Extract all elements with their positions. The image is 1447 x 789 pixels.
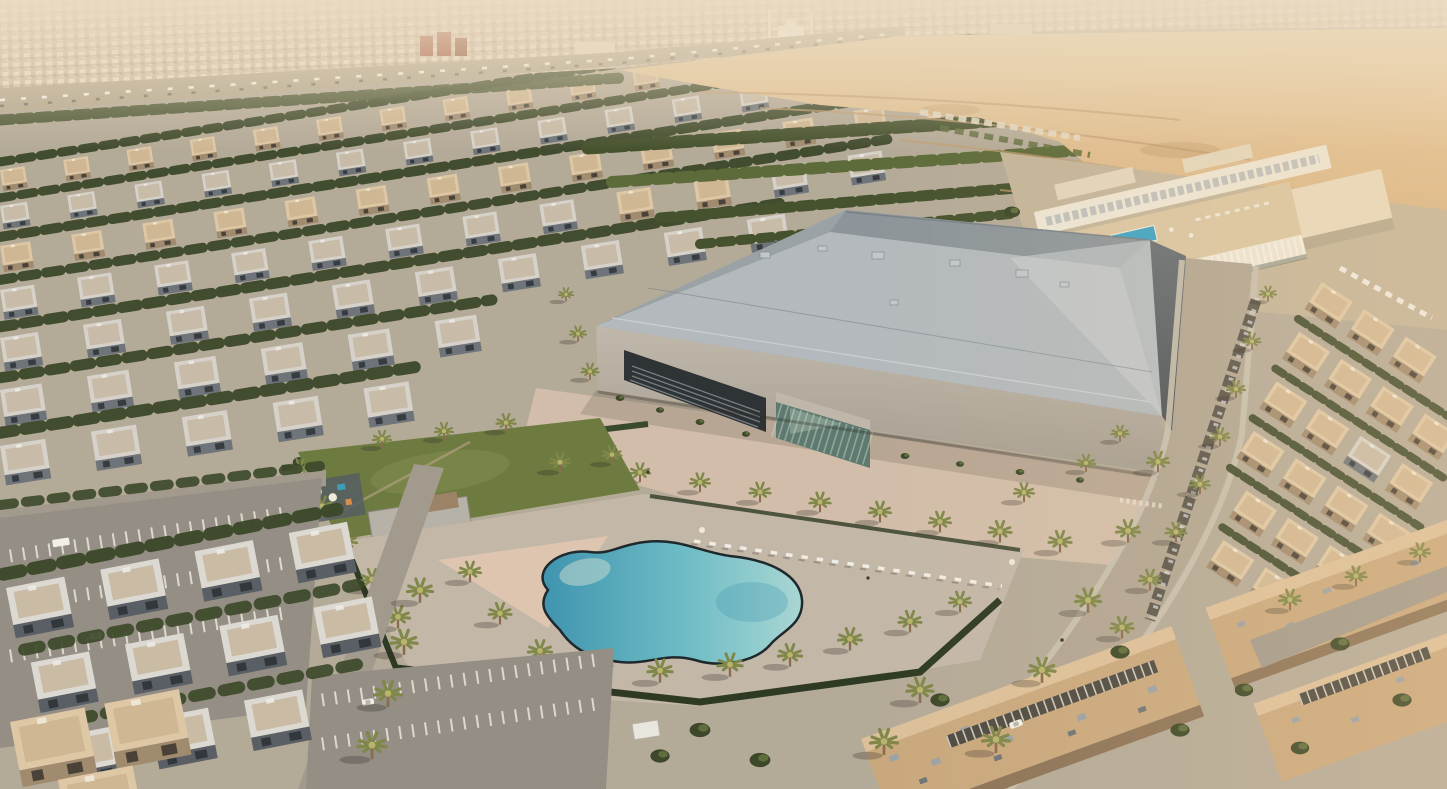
aerial-photo-canvas: Golden-hour aerial photograph of a deser… [0, 0, 1447, 789]
aerial-photograph: Golden-hour aerial photograph of a deser… [0, 0, 1447, 789]
horizon-haze [0, 0, 1447, 150]
